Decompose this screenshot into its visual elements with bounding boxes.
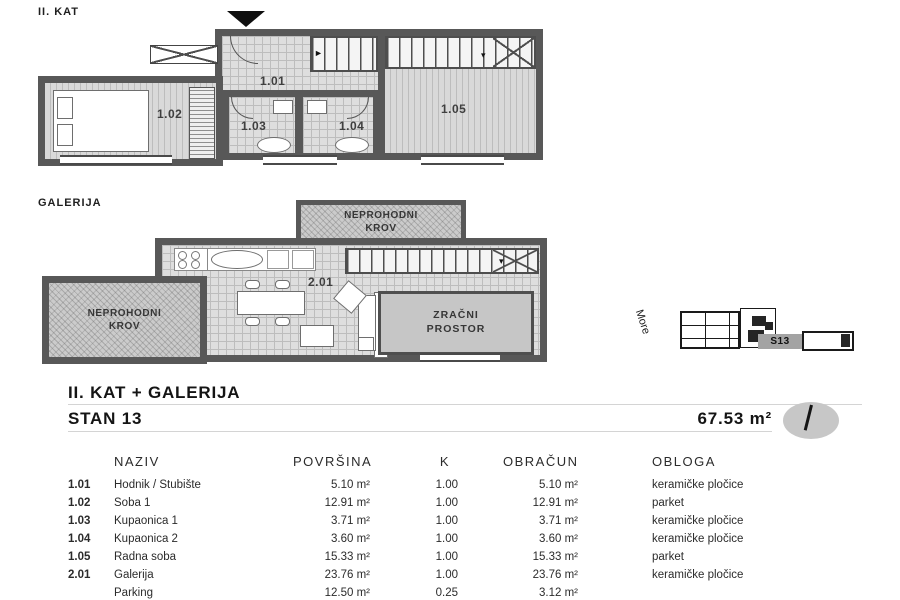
cell-area: 12.50 m² [290,584,370,600]
cell-num: 1.02 [68,494,114,512]
stove-icon [175,249,208,270]
cell-area: 5.10 m² [290,476,370,494]
area-table: NAZIV POVRŠINA K OBRAČUN OBLOGA 1.01Hodn… [68,452,868,600]
roof-label-line1: NEPROHODNI [344,209,418,222]
table-body: 1.01Hodnik / Stubište5.10 m²1.005.10 m²k… [68,476,868,600]
table-row: 1.03Kupaonica 13.71 m²1.003.71 m²keramič… [68,512,868,530]
cell-area: 12.91 m² [290,494,370,512]
cell-fin: parket [578,494,868,512]
chair-icon [245,317,260,326]
door-arc-icon [231,97,253,119]
sea-label: More [633,308,652,336]
cell-name: Hodnik / Stubište [114,476,290,494]
floor-plan-sheet: II. KAT ► 1.01 1.02 1.03 1.04 ▾ [0,0,900,600]
cell-calc: 12.91 m² [458,494,578,512]
pillow-icon [57,97,73,119]
room-label: 2.01 [308,275,333,289]
cell-fin: keramičke pločice [578,512,868,530]
cell-name: Soba 1 [114,494,290,512]
cell-calc: 5.10 m² [458,476,578,494]
roof-label-line1: NEPROHODNI [88,307,162,320]
cell-name: Parking [114,584,290,600]
site-core-icon [752,316,766,326]
appliance-icon [267,250,289,269]
cell-name: Galerija [114,566,290,584]
cell-k: 1.00 [370,548,458,566]
cell-k: 1.00 [370,512,458,530]
gallery-plan-label: GALERIJA [38,197,102,209]
site-core-icon [765,322,773,330]
stair-direction-arrow-icon: ▾ [499,256,504,267]
sofa-cushion-icon [358,337,374,351]
total-area: 67.53 m² [560,409,772,429]
table-row: 2.01Galerija23.76 m²1.0023.76 m²keramičk… [68,566,868,584]
dining-table-icon [237,291,305,315]
appliance-icon [292,250,314,269]
roof-area-left: NEPROHODNI KROV [42,276,207,364]
cell-num: 1.05 [68,548,114,566]
door-arc-icon [347,97,369,119]
toilet-icon [257,137,291,153]
stair-direction-arrow-icon: ▾ [481,50,486,61]
kitchen-counter [174,248,316,271]
table-row: 1.04Kupaonica 23.60 m²1.003.60 m²keramič… [68,530,868,548]
cell-num: 1.01 [68,476,114,494]
window-icon [60,155,172,165]
cell-fin: keramičke pločice [578,530,868,548]
site-building-left [680,311,740,349]
roof-label-line2: KROV [365,222,396,235]
pillow-icon [57,124,73,146]
cell-k: 0.25 [370,584,458,600]
cell-name: Kupaonica 1 [114,512,290,530]
header-obloga: OBLOGA [578,452,868,476]
cell-fin: parket [578,548,868,566]
unit-s13-highlight: S13 [758,334,802,349]
cell-calc: 3.60 m² [458,530,578,548]
header-naziv: NAZIV [114,452,290,476]
window-icon [263,155,337,165]
cell-k: 1.00 [370,476,458,494]
cell-area: 3.60 m² [290,530,370,548]
cell-name: Kupaonica 2 [114,530,290,548]
cell-k: 1.00 [370,494,458,512]
cell-num [68,584,114,600]
table-header: NAZIV POVRŠINA K OBRAČUN OBLOGA [68,452,868,476]
table-row: 1.05Radna soba15.33 m²1.0015.33 m²parket [68,548,868,566]
cell-name: Radna soba [114,548,290,566]
room-bedroom-1-02: 1.02 [38,76,223,166]
divider [68,431,772,432]
page-title: II. KAT + GALERIJA [68,383,240,403]
header-obracun: OBRAČUN [458,452,578,476]
air-space-line1: ZRAČNI [433,309,479,323]
site-core-icon [841,334,850,347]
room-bathroom-1-03: 1.03 [222,90,302,160]
cell-area: 15.33 m² [290,548,370,566]
cell-calc: 3.71 m² [458,512,578,530]
stair-direction-arrow-icon: ► [314,48,323,58]
room-study-1-05: ▾ 1.05 [378,29,543,160]
cell-num: 2.01 [68,566,114,584]
header-k: K [370,452,458,476]
apartment-title: STAN 13 [68,409,142,429]
upper-plan-label: II. KAT [38,6,79,18]
cell-calc: 3.12 m² [458,584,578,600]
wardrobe-icon [189,87,215,159]
cell-fin [578,584,868,600]
cell-num: 1.03 [68,512,114,530]
staircase-icon: ▾ [345,248,539,274]
compass-needle-icon [804,405,813,431]
chair-icon [275,280,290,289]
cell-k: 1.00 [370,566,458,584]
roof-label-line2: KROV [109,320,140,333]
room-label: 1.05 [441,102,466,116]
chair-icon [275,317,290,326]
compass-icon [783,402,839,439]
room-label: 1.01 [260,74,285,88]
cell-fin: keramičke pločice [578,566,868,584]
bed-icon [53,90,149,152]
window-icon [420,353,500,362]
room-label: 1.04 [339,119,364,133]
table-row: Parking12.50 m²0.253.12 m² [68,584,868,600]
entrance-arrow-icon [227,11,265,27]
stair-winder-icon [493,38,534,67]
cell-num: 1.04 [68,530,114,548]
staircase-icon: ▾ [385,36,536,69]
room-bathroom-1-04: 1.04 [296,90,380,160]
header-povrsina: POVRŠINA [290,452,370,476]
room-label: 1.02 [157,107,182,121]
toilet-icon [335,137,369,153]
room-label: 1.03 [241,119,266,133]
cell-fin: keramičke pločice [578,476,868,494]
table-row: 1.02Soba 112.91 m²1.0012.91 m²parket [68,494,868,512]
kitchen-sink-icon [211,250,263,269]
divider [68,404,862,405]
chair-icon [245,280,260,289]
air-space: ZRAČNI PROSTOR [378,291,534,355]
window-icon [421,155,504,165]
coffee-table-icon [300,325,334,347]
cell-k: 1.00 [370,530,458,548]
door-arc-icon [230,36,258,64]
shaft-x-icon [150,45,218,64]
table-row: 1.01Hodnik / Stubište5.10 m²1.005.10 m²k… [68,476,868,494]
air-space-line2: PROSTOR [427,323,486,337]
cell-area: 23.76 m² [290,566,370,584]
cell-calc: 23.76 m² [458,566,578,584]
cell-calc: 15.33 m² [458,548,578,566]
sink-icon [307,100,327,114]
sink-icon [273,100,293,114]
cell-area: 3.71 m² [290,512,370,530]
